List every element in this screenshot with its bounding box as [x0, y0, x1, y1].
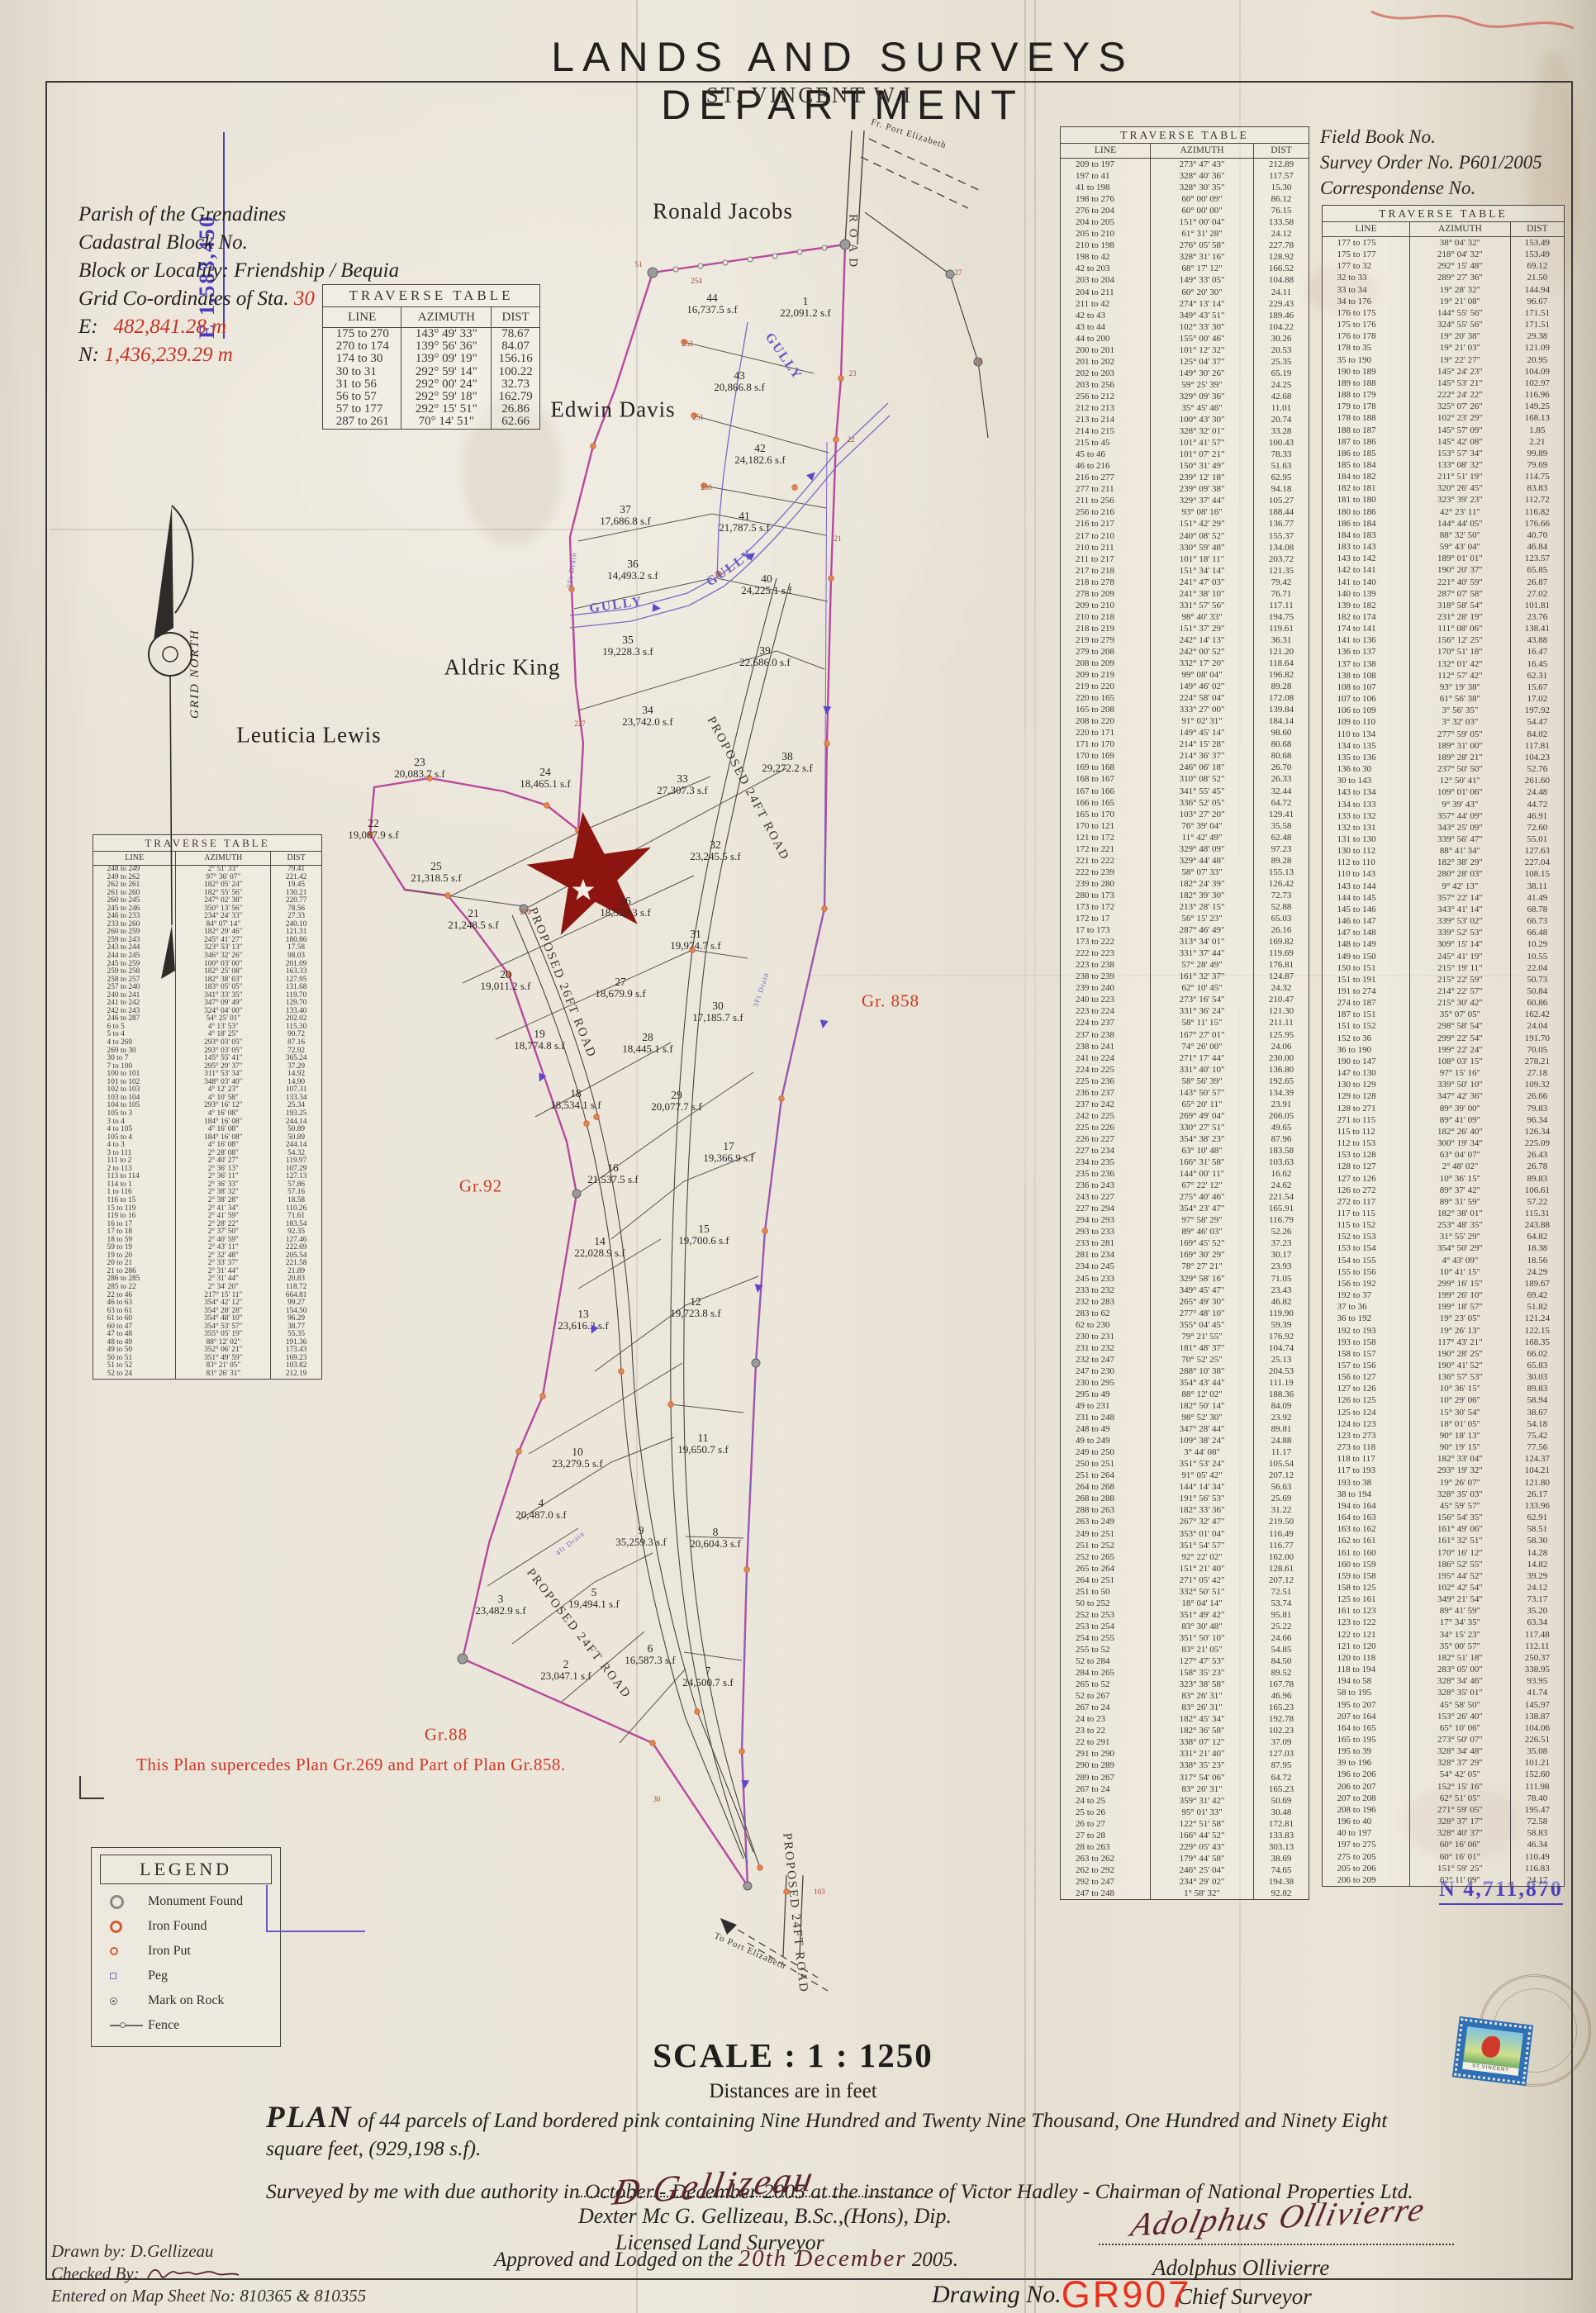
grid-north-label: GRID NORTH	[188, 629, 202, 719]
flow-arrow-icon: ▶	[739, 1780, 752, 1789]
footer-block: Drawn by: D.Gellizeau Checked By: Entere…	[51, 2240, 366, 2307]
parcel-label: 1918,774.8 s.f	[514, 1028, 564, 1052]
parcel-label: 4416,737.5 s.f	[686, 292, 737, 316]
parcel-label: 1621,537.5 s.f	[587, 1162, 638, 1185]
vertex-number: 251	[692, 413, 704, 421]
parcel-label: 3614,493.2 s.f	[607, 558, 658, 582]
vertex-number: 30	[653, 1795, 661, 1803]
vertex-number: 103	[814, 1888, 825, 1896]
parcel-label: 1422,028.9 s.f	[574, 1236, 625, 1259]
vertex-number: 51	[635, 260, 643, 268]
purple-corner-mark	[266, 1885, 365, 1932]
zone-label: Gr.92	[459, 1176, 502, 1197]
parcel-label: 1519,700.6 s.f	[678, 1223, 729, 1247]
port-elizabeth-arrow	[720, 1918, 737, 1935]
parcel-label: 616,587.3 s.f	[625, 1643, 675, 1666]
plan-statement: PLAN of 44 parcels of Land bordered pink…	[266, 2106, 1423, 2204]
fence-line	[673, 245, 827, 272]
vertex-number: 227	[574, 720, 586, 728]
legend-item-label: Fence	[148, 2018, 179, 2033]
rock-icon	[110, 1997, 117, 2005]
checked-by: Checked By:	[51, 2263, 366, 2285]
peg-icon	[110, 1973, 116, 1979]
parcel-label: 420,487.0 s.f	[515, 1498, 566, 1521]
legend-item-label: Mark on Rock	[148, 1993, 224, 2008]
parcel-label: 2121,248.5 s.f	[448, 908, 498, 931]
iron-found-icon	[110, 1921, 122, 1933]
survey-plan-sheet: LANDS AND SURVEYS DEPARTMENT ST. VINCENT…	[0, 0, 1596, 2313]
iron-put-icon	[110, 1947, 118, 1955]
plan-word: PLAN	[266, 2101, 353, 2135]
fence-icon	[110, 2025, 143, 2026]
chief-surveyor-title: Chief Surveyor	[1177, 2284, 1312, 2310]
surveyor-name: Dexter Mc G. Gellizeau, B.Sc.,(Hons), Di…	[578, 2204, 952, 2229]
black-corner-mark	[79, 1776, 104, 1799]
vertex-number: 254	[691, 277, 702, 285]
parcel-label: 1719,366.9 s.f	[703, 1141, 753, 1164]
parcel-label: 2618,558.3 s.f	[600, 895, 650, 919]
parcel-label: 935,259.3 s.f	[615, 1525, 666, 1548]
parcel-label: 724,500.7 s.f	[682, 1665, 733, 1688]
parcel-label: 2718,679.9 s.f	[595, 976, 645, 1000]
parcel-label: 1219,723.8 s.f	[670, 1296, 720, 1319]
legend-title: LEGEND	[100, 1855, 272, 1884]
parcel-label: 1818,534.1 s.f	[550, 1088, 601, 1111]
legend-item: Iron Found	[92, 1914, 280, 1939]
monument-icon	[110, 1895, 124, 1909]
monument-dots	[458, 240, 982, 1890]
vertex-number: 250	[701, 483, 712, 492]
signature-line	[578, 2196, 925, 2197]
owner-label: Ronald Jacobs	[653, 199, 793, 225]
parcel-label: 1323,616.2 s.f	[558, 1308, 608, 1332]
parcel-label: 4320,866.8 s.f	[714, 370, 764, 393]
legend-item-label: Iron Found	[148, 1919, 207, 1934]
parcel-label: 4121,787.5 s.f	[719, 511, 769, 534]
parcel-label: 3017,185.7 s.f	[692, 1000, 743, 1024]
vertex-number: 22	[848, 435, 855, 444]
owner-label: Leuticia Lewis	[236, 723, 381, 748]
legend-item: Monument Found	[92, 1889, 280, 1914]
neighbour-lines	[865, 212, 988, 438]
vertex-number: 220	[520, 908, 531, 916]
parcel-label: 3829,272.2 s.f	[762, 751, 812, 774]
parcel-label: 2019,011.2 s.f	[481, 969, 531, 992]
approved-line: Approved and Lodged on the 20th December…	[494, 2245, 958, 2273]
gully-lines	[570, 322, 890, 1886]
parcel-label: 3519,228.3 s.f	[602, 634, 653, 658]
legend-item-label: Monument Found	[148, 1894, 243, 1909]
parcel-label: 3119,974.7 s.f	[670, 929, 720, 952]
drawing-number: Drawing No.GR907	[932, 2273, 1191, 2313]
parcel-label: 3223,245.5 s.f	[690, 839, 740, 862]
zone-label: Gr. 858	[862, 991, 919, 1012]
parcel-label: 3423,742.0 s.f	[622, 705, 672, 728]
owner-label: Aldric King	[444, 655, 561, 681]
vertex-number: 252	[682, 340, 693, 348]
parcel-label: 3717,686.8 s.f	[600, 504, 650, 527]
checked-by-signature	[145, 2265, 244, 2283]
vertex-number: 21	[834, 534, 842, 543]
approved-date: 20th December	[739, 2245, 907, 2272]
parcel-label: 4224,182.6 s.f	[734, 443, 785, 466]
road-top	[845, 131, 979, 245]
legend-item: Iron Put	[92, 1939, 280, 1964]
legend-box: LEGEND Monument FoundIron FoundIron PutP…	[91, 1847, 281, 2047]
legend-item: Mark on Rock	[92, 1988, 280, 2013]
legend-item: Fence	[92, 2013, 280, 2038]
signature-line	[1099, 2244, 1454, 2245]
vertex-number: 28	[975, 358, 982, 366]
parcel-label: 2818,445.1 s.f	[622, 1032, 672, 1055]
scale-block: SCALE : 1 : 1250 Distances are in feet	[545, 2035, 1041, 2103]
drawn-by: Drawn by: D.Gellizeau	[51, 2240, 366, 2263]
parcel-label: 122,091.2 s.f	[780, 296, 830, 319]
parcel-label: 2521,318.5 s.f	[411, 861, 461, 884]
scale-text: SCALE : 1 : 1250	[545, 2035, 1041, 2075]
flow-arrow-icon: ▶	[652, 601, 661, 615]
road-label: R O A D	[846, 214, 860, 268]
flow-arrow-icon: ▶	[820, 705, 834, 715]
parcel-label: 3327,307.3 s.f	[657, 773, 707, 796]
parcel-label: 820,604.3 s.f	[690, 1527, 740, 1550]
vertex-number: 27	[955, 268, 962, 277]
north-arrow	[149, 506, 192, 979]
parcel-label: 2219,087.9 s.f	[348, 818, 398, 841]
parcel-label: 4024,225.1 s.f	[741, 573, 791, 596]
vertex-number: 23	[849, 369, 857, 378]
legend-item: Peg	[92, 1964, 280, 1988]
parcel-boundary-pink	[370, 245, 845, 1886]
parcel-label: 2320,083.7 s.f	[394, 757, 444, 780]
parcel-label: 1119,650.7 s.f	[677, 1432, 728, 1456]
parcel-label: 2418,465.1 s.f	[520, 767, 570, 790]
parcel-label: 519,494.1 s.f	[568, 1587, 619, 1610]
postage-stamp: ST.VINCENT	[1454, 2018, 1532, 2084]
owner-label: Edwin Davis	[550, 397, 675, 423]
scale-units: Distances are in feet	[545, 2080, 1041, 2103]
parcel-label: 3922,686.0 s.f	[739, 645, 790, 668]
parcel-label: 223,047.1 s.f	[540, 1659, 591, 1682]
red-scribble	[1371, 12, 1574, 28]
legend-item-label: Peg	[148, 1969, 168, 1983]
zone-label: Gr.88	[425, 1725, 468, 1745]
supersede-note: This Plan supercedes Plan Gr.269 and Par…	[136, 1755, 566, 1775]
parcel-label: 2920,077.7 s.f	[651, 1090, 701, 1113]
parcel-label: 1023,279.5 s.f	[552, 1446, 602, 1470]
legend-item-label: Iron Put	[148, 1944, 191, 1959]
entered-on: Entered on Map Sheet No: 810365 & 810355	[51, 2285, 366, 2307]
parcel-label: 323,482.9 s.f	[475, 1593, 525, 1617]
